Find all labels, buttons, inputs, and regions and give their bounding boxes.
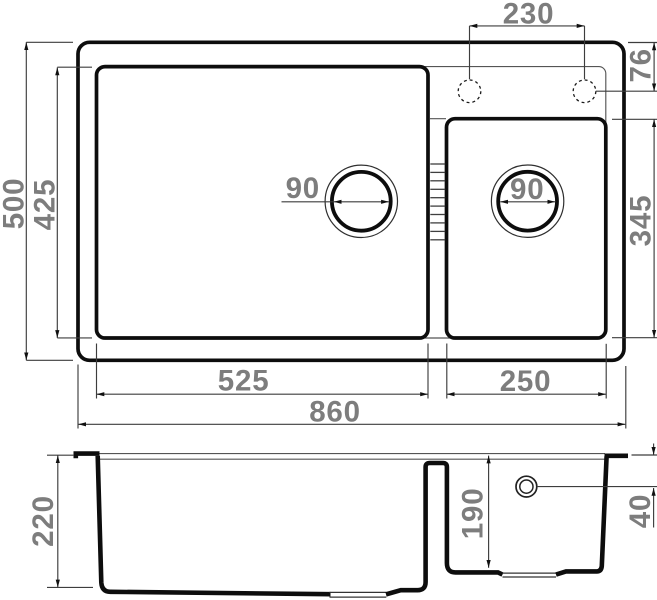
svg-text:230: 230 — [503, 0, 555, 30]
svg-text:500: 500 — [0, 178, 30, 230]
svg-text:525: 525 — [218, 365, 270, 398]
svg-text:76: 76 — [625, 48, 657, 82]
svg-text:860: 860 — [309, 396, 361, 429]
svg-text:425: 425 — [28, 179, 61, 231]
svg-text:40: 40 — [624, 494, 657, 528]
svg-text:90: 90 — [286, 172, 320, 205]
svg-text:345: 345 — [624, 195, 657, 247]
svg-text:90: 90 — [510, 173, 544, 206]
svg-text:250: 250 — [500, 365, 552, 398]
svg-text:190: 190 — [456, 488, 489, 540]
svg-text:220: 220 — [27, 495, 60, 547]
